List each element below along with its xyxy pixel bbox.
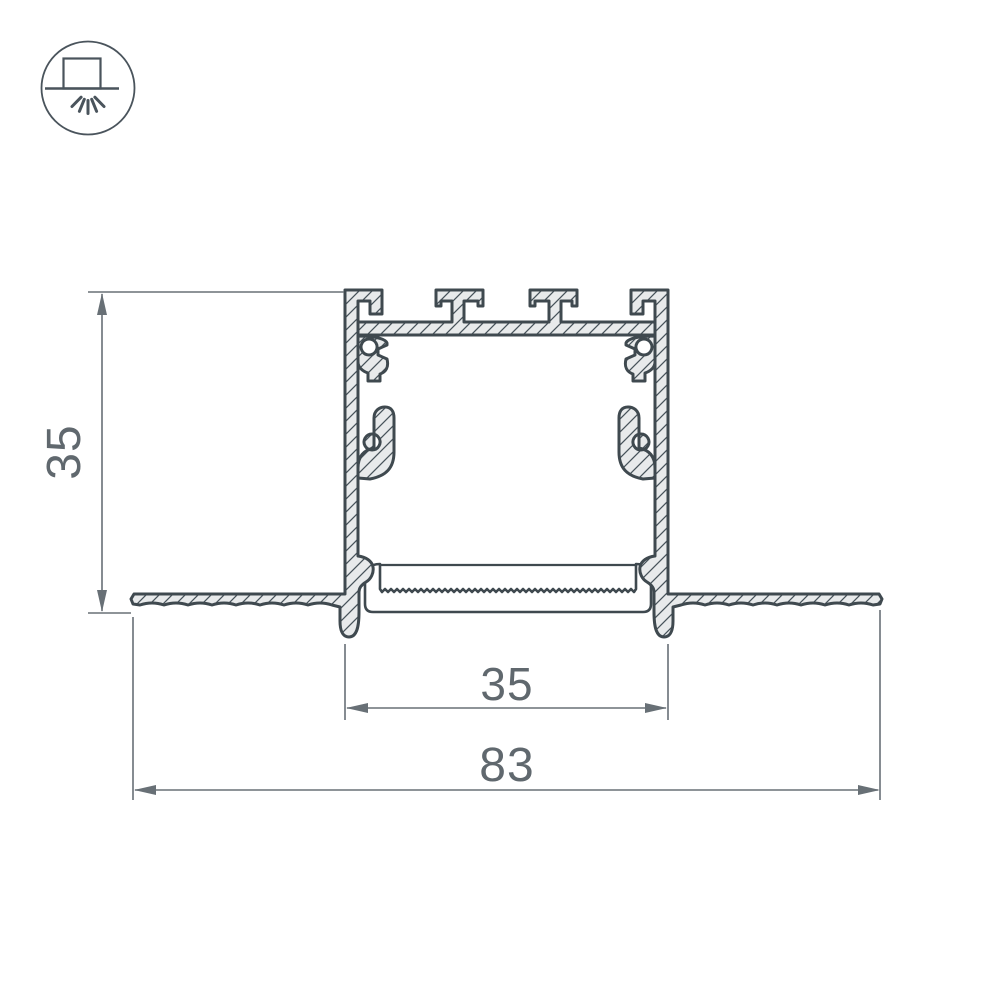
drawing-page: 35 35 83 (0, 0, 1000, 1000)
profile-cross-section (131, 290, 882, 637)
arrowhead-left (346, 703, 368, 713)
arrowhead-left (134, 785, 156, 795)
dimension-value-overall-width: 83 (479, 739, 534, 792)
arrowhead-right (858, 785, 880, 795)
profile-technical-drawing: 35 35 83 (0, 0, 1000, 1000)
profile-left-half (131, 290, 394, 637)
top-web-with-tabs (358, 290, 655, 335)
arrowhead-right (645, 703, 667, 713)
icon-fixture-box (64, 59, 101, 89)
recessed-light-icon (42, 42, 135, 135)
arrowhead-down (97, 590, 107, 612)
dimension-height: 35 (38, 292, 344, 613)
arrowhead-up (97, 293, 107, 315)
dimension-value-height: 35 (38, 424, 91, 479)
dimension-value-recess-width: 35 (480, 658, 533, 710)
dimensions: 35 35 83 (38, 292, 880, 800)
icon-light-rays (72, 97, 104, 113)
dimension-recess-width: 35 (345, 644, 668, 720)
profile-right-half (619, 290, 882, 637)
diffuser-tray (365, 564, 651, 612)
